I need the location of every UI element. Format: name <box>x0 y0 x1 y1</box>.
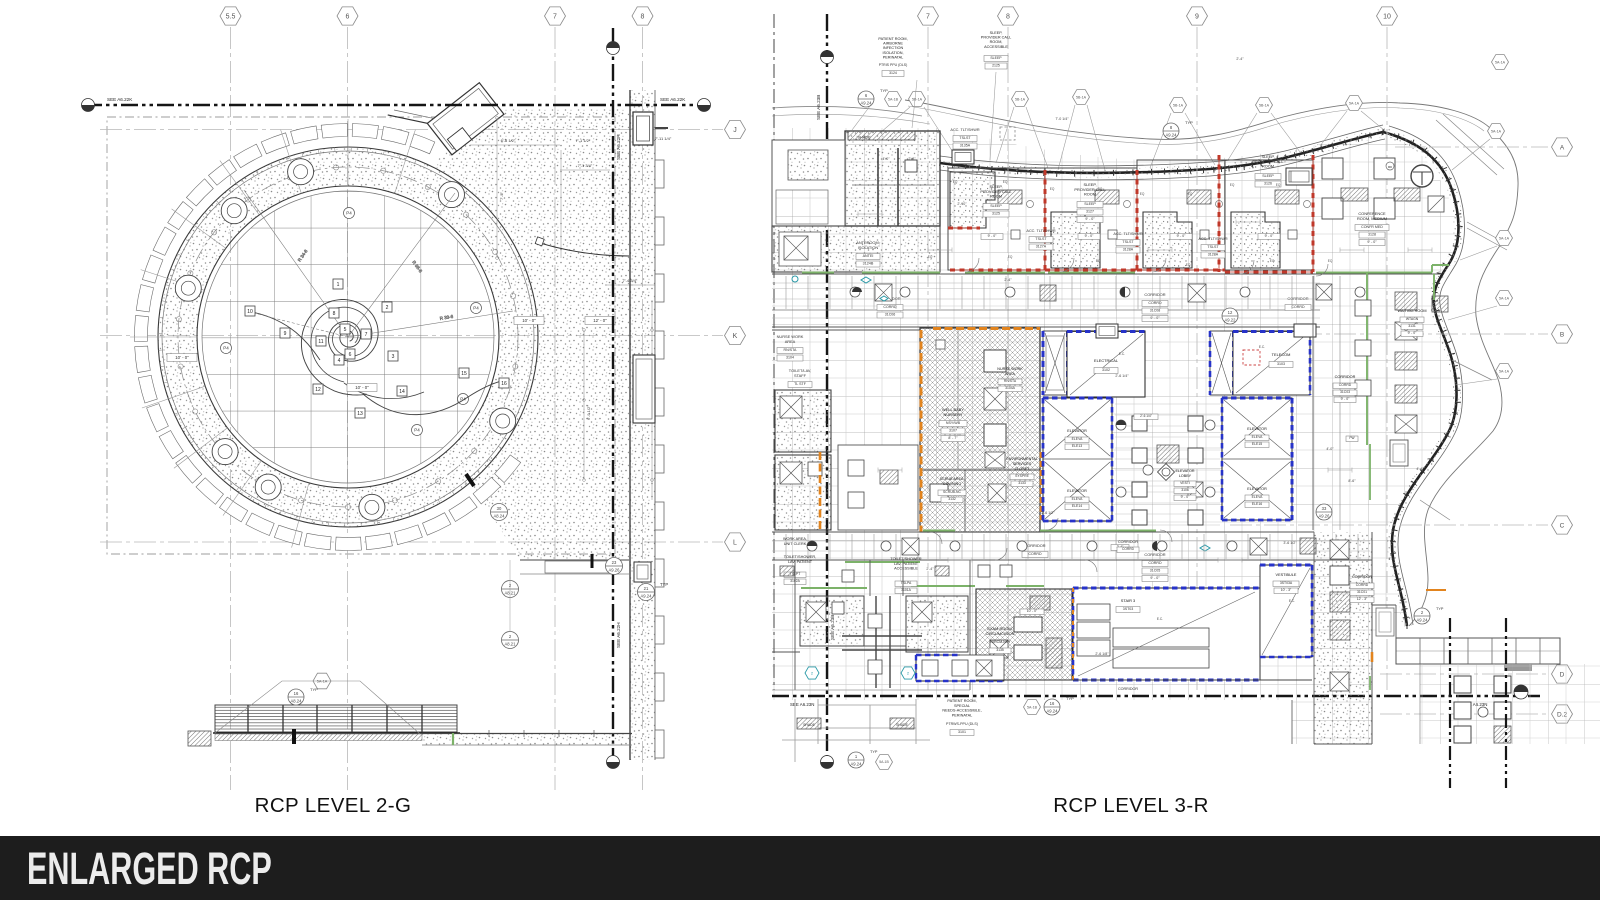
svg-text:2'-8": 2'-8" <box>908 157 916 161</box>
svg-text:5B-1A: 5B-1A <box>912 97 923 101</box>
svg-text:EQ: EQ <box>1230 183 1235 187</box>
svg-text:21: 21 <box>644 586 649 591</box>
svg-text:SEE A6.23N: SEE A6.23N <box>790 702 814 707</box>
svg-text:5B-1A: 5B-1A <box>1015 97 1026 101</box>
svg-text:7: 7 <box>553 13 557 20</box>
svg-text:RN/STA: RN/STA <box>784 348 798 352</box>
svg-text:3132: 3132 <box>948 497 956 501</box>
svg-text:6: 6 <box>349 352 352 358</box>
svg-text:PERINATAL: PERINATAL <box>883 55 904 59</box>
svg-text:2'-6 1/4": 2'-6 1/4" <box>1115 374 1129 378</box>
svg-text:10' - 0": 10' - 0" <box>1027 609 1038 613</box>
svg-text:PTRIS PPU (DLS): PTRIS PPU (DLS) <box>879 63 908 67</box>
svg-text:31C03: 31C03 <box>1340 390 1350 394</box>
svg-text:5A-1A: 5A-1A <box>1499 236 1510 240</box>
svg-text:9: 9 <box>1195 13 1199 20</box>
svg-text:9' - 0": 9' - 0" <box>1265 234 1274 238</box>
svg-text:ENVIRONMENTAL: ENVIRONMENTAL <box>1006 457 1037 461</box>
svg-text:SHADE: SHADE <box>803 723 815 727</box>
svg-text:2'-4": 2'-4" <box>1004 278 1012 282</box>
svg-text:LAV. PATIENT: LAV. PATIENT <box>788 560 813 564</box>
svg-text:9' - 0": 9' - 0" <box>1085 217 1095 221</box>
svg-text:CORRD: CORRD <box>883 305 897 309</box>
svg-text:16: 16 <box>501 381 507 387</box>
svg-text:ACCESSIBLE: ACCESSIBLE <box>984 45 1008 49</box>
svg-text:6'-8 1/2": 6'-8 1/2" <box>501 138 516 143</box>
svg-text:RCP LEVEL 3-R: RCP LEVEL 3-R <box>1053 794 1209 817</box>
svg-text:MD: MD <box>1388 165 1392 169</box>
svg-text:E.C.: E.C. <box>1157 617 1163 621</box>
svg-text:A9.24: A9.24 <box>1166 133 1178 138</box>
svg-text:ACC. TLT/SHWR: ACC. TLT/SHWR <box>1198 237 1227 241</box>
svg-text:SLEEP: SLEEP <box>1262 174 1274 178</box>
svg-text:CORRIDOR: CORRIDOR <box>1287 296 1308 301</box>
svg-text:3124B: 3124B <box>863 262 874 266</box>
svg-text:PROVIDER CALL: PROVIDER CALL <box>981 36 1011 40</box>
svg-text:EQ: EQ <box>1270 259 1275 263</box>
svg-text:1: 1 <box>337 282 340 288</box>
svg-text:ELECTRICAL: ELECTRICAL <box>1094 358 1119 363</box>
svg-text:PATIENT ROOM,: PATIENT ROOM, <box>947 699 976 703</box>
svg-text:ELEVATOR: ELEVATOR <box>1247 487 1267 491</box>
svg-text:STAIR 3: STAIR 3 <box>1121 598 1135 603</box>
svg-text:3'-6 1/2": 3'-6 1/2" <box>1283 541 1297 545</box>
svg-text:L: L <box>733 539 737 546</box>
svg-text:3102: 3102 <box>1102 368 1110 372</box>
svg-text:UNIT CLERK: UNIT CLERK <box>784 542 807 546</box>
svg-text:TYP: TYP <box>310 687 318 692</box>
svg-text:A9.26: A9.26 <box>609 568 621 573</box>
svg-text:5A-1A: 5A-1A <box>1499 296 1510 300</box>
svg-text:CORRIDOR: CORRIDOR <box>1024 543 1045 548</box>
svg-text:RN/STA: RN/STA <box>1004 379 1017 383</box>
svg-text:A9.26: A9.26 <box>1319 514 1331 519</box>
svg-text:7'-11 1/4": 7'-11 1/4" <box>655 136 672 141</box>
svg-text:CORRIDOR: CORRIDOR <box>1144 292 1165 297</box>
svg-text:EQ: EQ <box>1328 259 1333 263</box>
svg-text:3135A: 3135A <box>960 144 971 148</box>
svg-text:31C01: 31C01 <box>1357 590 1367 594</box>
svg-text:8: 8 <box>641 13 645 20</box>
svg-text:SYSPRE: SYSPRE <box>1015 474 1029 478</box>
svg-text:16: 16 <box>1050 701 1055 706</box>
svg-text:2'-10": 2'-10" <box>957 202 967 206</box>
svg-text:4'-0": 4'-0" <box>882 157 890 161</box>
svg-text:5: 5 <box>344 327 347 333</box>
svg-text:PTRWS-PPU (DLS): PTRWS-PPU (DLS) <box>946 722 978 726</box>
svg-text:3107: 3107 <box>949 429 957 433</box>
svg-text:TOILET/SHOWER,: TOILET/SHOWER, <box>784 555 816 559</box>
svg-text:STAFF: STAFF <box>794 373 807 378</box>
svg-text:3ST03: 3ST03 <box>1123 607 1134 611</box>
svg-text:9' - 0": 9' - 0" <box>1085 234 1094 238</box>
svg-text:8'-6": 8'-6" <box>1348 479 1356 483</box>
svg-text:SEE A6.22H: SEE A6.22H <box>616 134 621 160</box>
svg-text:ACCESSIBLE: ACCESSIBLE <box>894 567 918 571</box>
svg-text:AREA: AREA <box>1005 372 1016 376</box>
svg-text:WORK AREA,: WORK AREA, <box>783 537 807 541</box>
svg-text:3131: 3131 <box>1408 324 1416 328</box>
svg-text:5A-1A: 5A-1A <box>1349 101 1360 105</box>
svg-text:A: A <box>1560 144 1565 151</box>
svg-text:9' - 0": 9' - 0" <box>1408 331 1417 335</box>
svg-text:ACC. TLT/SHWR: ACC. TLT/SHWR <box>1113 232 1142 236</box>
svg-text:33: 33 <box>1322 506 1327 511</box>
svg-text:4: 4 <box>338 358 341 364</box>
svg-text:ENLARGED RCP: ENLARGED RCP <box>27 844 272 894</box>
svg-text:5A-1B: 5A-1B <box>879 760 889 764</box>
svg-text:7'-1 3/4": 7'-1 3/4" <box>578 163 593 168</box>
svg-text:3133: 3133 <box>1018 481 1026 485</box>
svg-text:AIRBORNE: AIRBORNE <box>883 42 903 46</box>
svg-text:ROOM: ROOM <box>1262 164 1274 169</box>
svg-text:TYP: TYP <box>870 750 878 754</box>
svg-text:CONFR MED: CONFR MED <box>1361 225 1383 229</box>
svg-text:CLOSET: CLOSET <box>1015 467 1031 471</box>
svg-text:5B-1A: 5B-1A <box>1076 95 1087 99</box>
svg-text:10' - 3": 10' - 3" <box>1281 588 1292 592</box>
svg-text:CORRIDOR: CORRIDOR <box>1352 575 1372 579</box>
svg-text:CORRIDOR: CORRIDOR <box>1335 375 1356 379</box>
svg-text:ELE14: ELE14 <box>1072 504 1082 508</box>
svg-text:12' - 0": 12' - 0" <box>593 318 607 323</box>
svg-text:RCP LEVEL 2-G: RCP LEVEL 2-G <box>255 794 412 817</box>
svg-text:3128A: 3128A <box>1208 253 1219 257</box>
svg-text:CORRD: CORRD <box>1028 552 1042 556</box>
svg-text:CORRD: CORRD <box>1339 383 1352 387</box>
svg-text:23: 23 <box>612 560 617 565</box>
svg-text:3: 3 <box>392 354 395 360</box>
svg-text:3104A: 3104A <box>1005 386 1016 390</box>
svg-text:31C06: 31C06 <box>885 313 896 317</box>
svg-text:9' - 0": 9' - 0" <box>1367 240 1377 244</box>
svg-text:SLEEP: SLEEP <box>1084 202 1096 206</box>
svg-text:5A-1A: 5A-1A <box>317 679 328 683</box>
svg-text:7'-0 1/4": 7'-0 1/4" <box>1055 117 1069 121</box>
svg-text:5A-1B: 5A-1B <box>888 97 899 101</box>
svg-text:ISOLATION,: ISOLATION, <box>882 51 903 55</box>
svg-text:SEE A6.22H: SEE A6.22H <box>616 622 621 648</box>
svg-text:3128A: 3128A <box>1123 248 1134 252</box>
svg-text:EQ: EQ <box>1050 187 1055 191</box>
svg-text:CORRD: CORRD <box>1148 561 1162 565</box>
svg-text:EQ: EQ <box>1098 187 1103 191</box>
svg-text:PATIENT ROOM,: PATIENT ROOM, <box>878 37 907 41</box>
svg-text:WTAGN: WTAGN <box>1406 317 1419 321</box>
svg-text:EQ: EQ <box>1003 180 1008 184</box>
svg-text:7: 7 <box>365 332 368 338</box>
svg-text:EQ: EQ <box>1008 255 1013 259</box>
svg-text:EQ: EQ <box>1276 183 1281 187</box>
svg-text:9' - 0": 9' - 0" <box>1181 495 1190 499</box>
svg-text:P4: P4 <box>223 346 229 351</box>
svg-text:VESTI: VESTI <box>1180 481 1190 485</box>
svg-text:CORRD: CORRD <box>1122 547 1135 551</box>
svg-text:SHADE: SHADE <box>896 723 908 727</box>
svg-text:7'-1 1/2": 7'-1 1/2" <box>576 138 591 143</box>
svg-text:CORRIDOR: CORRIDOR <box>1118 540 1138 544</box>
svg-text:7: 7 <box>926 13 930 20</box>
svg-text:6: 6 <box>346 13 350 20</box>
svg-text:ACC. TLT/SHWR: ACC. TLT/SHWR <box>950 128 979 132</box>
svg-text:3ST03A: 3ST03A <box>1280 581 1293 585</box>
svg-text:3127A: 3127A <box>1036 245 1047 249</box>
svg-text:TSLST: TSLST <box>959 136 971 140</box>
svg-text:E.C.: E.C. <box>1259 345 1265 349</box>
svg-text:4'-4": 4'-4" <box>1416 467 1424 471</box>
svg-text:5B-1A: 5B-1A <box>1173 103 1184 107</box>
svg-text:ELEVA: ELEVA <box>1252 495 1263 499</box>
svg-text:PW: PW <box>1349 436 1354 440</box>
svg-text:SPECIAL: SPECIAL <box>954 704 970 708</box>
svg-text:9: 9 <box>284 331 287 337</box>
svg-text:LAV. PATIENT: LAV. PATIENT <box>894 562 919 566</box>
svg-text:3127: 3127 <box>1086 210 1094 214</box>
svg-text:SERVICES: SERVICES <box>1013 462 1032 466</box>
svg-text:9' - 0": 9' - 0" <box>1341 397 1350 401</box>
svg-text:ANTEI: ANTEI <box>863 254 874 258</box>
svg-text:EQ: EQ <box>1140 192 1145 196</box>
svg-text:5A-1A: 5A-1A <box>1491 129 1502 133</box>
svg-text:11: 11 <box>318 339 323 345</box>
svg-text:EQ: EQ <box>1096 259 1101 263</box>
svg-text:SHADE: SHADE <box>857 136 871 140</box>
svg-text:A9.24: A9.24 <box>851 762 863 767</box>
svg-text:SLEEP,: SLEEP, <box>990 31 1003 35</box>
svg-text:5A-1A: 5A-1A <box>1499 369 1510 373</box>
svg-text:PERINATAL: PERINATAL <box>952 713 973 717</box>
svg-text:VESTIBULE: VESTIBULE <box>1276 573 1297 577</box>
svg-text:CORRD: CORRD <box>1356 583 1369 587</box>
svg-text:SCRUB AREA,: SCRUB AREA, <box>940 477 965 481</box>
svg-text:7'-5": 7'-5" <box>499 191 504 200</box>
svg-text:TSLPA: TSLPA <box>901 581 912 585</box>
svg-text:SEE A6.23B: SEE A6.23B <box>816 95 821 120</box>
svg-text:TL STF: TL STF <box>794 382 807 386</box>
svg-text:SLEEP: SLEEP <box>990 204 1002 208</box>
svg-text:A9.24: A9.24 <box>641 594 653 599</box>
svg-text:A8.24: A8.24 <box>494 514 506 519</box>
svg-text:10' - 0": 10' - 0" <box>355 385 369 390</box>
svg-text:ELEVA: ELEVA <box>1252 435 1263 439</box>
svg-text:SCRUB-NC: SCRUB-NC <box>943 490 961 494</box>
svg-text:EXRCM-NSY: EXRCM-NSY <box>989 640 1011 644</box>
svg-text:A9.24: A9.24 <box>861 101 873 106</box>
svg-text:9' - 0": 9' - 0" <box>1177 234 1186 238</box>
svg-text:C: C <box>1560 522 1565 529</box>
svg-text:ELEVA: ELEVA <box>1072 437 1083 441</box>
svg-text:B: B <box>1560 331 1564 338</box>
svg-text:NEEDS-ACCESSIBLE,: NEEDS-ACCESSIBLE, <box>942 709 981 713</box>
svg-text:2'-4": 2'-4" <box>1236 57 1244 61</box>
svg-text:A9.24: A9.24 <box>1417 618 1429 623</box>
svg-text:CIRCUMCISION: CIRCUMCISION <box>986 631 1015 636</box>
svg-text:2'-6 1/8": 2'-6 1/8" <box>1095 652 1109 656</box>
svg-text:13: 13 <box>357 411 363 417</box>
svg-text:6'-9 1/2": 6'-9 1/2" <box>586 405 591 420</box>
svg-text:5A-1B: 5A-1B <box>1027 705 1038 709</box>
svg-text:12: 12 <box>1228 310 1233 315</box>
svg-text:10' - 0": 10' - 0" <box>175 355 189 360</box>
svg-text:K: K <box>733 333 738 340</box>
svg-text:5A-1A: 5A-1A <box>1495 60 1506 64</box>
svg-text:EQ: EQ <box>928 255 933 259</box>
svg-text:TOILET/SHOWER: TOILET/SHOWER <box>890 557 922 561</box>
svg-text:INFECTION: INFECTION <box>883 46 904 50</box>
svg-text:CORRIDOR: CORRIDOR <box>1144 552 1165 557</box>
svg-text:TYP: TYP <box>1185 120 1193 125</box>
svg-text:14: 14 <box>399 389 405 395</box>
svg-text:TSLST: TSLST <box>1122 240 1134 244</box>
svg-text:10: 10 <box>247 309 253 315</box>
svg-text:3103: 3103 <box>1277 362 1285 366</box>
svg-text:ROOM: ROOM <box>990 194 1002 199</box>
svg-text:2'-6 1/4": 2'-6 1/4" <box>1140 414 1152 418</box>
svg-text:3128: 3128 <box>1368 233 1376 237</box>
svg-text:SLEEP: SLEEP <box>990 56 1002 60</box>
svg-text:SEE A6.22K: SEE A6.22K <box>660 97 686 102</box>
svg-text:WAITING ROOM: WAITING ROOM <box>1398 309 1427 313</box>
svg-text:ELE15: ELE15 <box>1252 442 1262 446</box>
svg-text:ACC. TLT/SHWR: ACC. TLT/SHWR <box>1026 229 1055 233</box>
svg-text:ELE13: ELE13 <box>1072 444 1082 448</box>
svg-text:31C05: 31C05 <box>1150 569 1161 573</box>
svg-text:TYP: TYP <box>880 88 888 93</box>
svg-text:9' - 0": 9' - 0" <box>1150 576 1160 580</box>
svg-text:2: 2 <box>386 305 389 311</box>
svg-text:12' - 3": 12' - 3" <box>1357 597 1368 601</box>
svg-text:10' - 0": 10' - 0" <box>522 318 536 323</box>
svg-text:3126: 3126 <box>1264 182 1272 186</box>
svg-text:TSLST: TSLST <box>1207 245 1219 249</box>
svg-text:3104: 3104 <box>786 356 794 360</box>
svg-text:A9.24: A9.24 <box>1047 709 1059 714</box>
svg-text:4'-0": 4'-0" <box>1326 447 1334 451</box>
svg-text:ELEVA: ELEVA <box>1072 497 1083 501</box>
svg-text:8' - 7": 8' - 7" <box>948 436 958 440</box>
svg-text:GOWNING: GOWNING <box>943 482 962 486</box>
svg-text:ROOM: ROOM <box>1084 192 1096 197</box>
svg-text:A8.21: A8.21 <box>505 591 517 596</box>
svg-text:NURSERY: NURSERY <box>944 412 963 417</box>
svg-text:SEE A6.22K: SEE A6.22K <box>107 97 133 102</box>
svg-text:E.C.: E.C. <box>1289 599 1295 603</box>
svg-text:ROOM,: ROOM, <box>990 40 1003 44</box>
svg-text:TYP: TYP <box>660 582 668 587</box>
svg-text:3106: 3106 <box>1181 488 1189 492</box>
svg-text:EQ: EQ <box>1186 263 1191 267</box>
svg-text:EQ: EQ <box>953 180 958 184</box>
svg-text:5B-1A: 5B-1A <box>1259 103 1270 107</box>
svg-text:AREA: AREA <box>785 339 796 344</box>
svg-text:P4: P4 <box>473 306 479 311</box>
svg-text:E.C.: E.C. <box>1119 352 1125 356</box>
svg-text:30: 30 <box>497 506 502 511</box>
svg-text:TSLST: TSLST <box>1035 237 1047 241</box>
svg-text:TYP: TYP <box>1066 696 1074 701</box>
svg-text:ELEVATOR: ELEVATOR <box>1247 427 1267 431</box>
svg-text:12: 12 <box>315 387 321 393</box>
svg-text:A8.21: A8.21 <box>505 642 517 647</box>
svg-text:31C08: 31C08 <box>1150 309 1161 313</box>
svg-text:ELEVATOR: ELEVATOR <box>1067 489 1087 493</box>
svg-text:8: 8 <box>1006 13 1010 20</box>
svg-text:3101: 3101 <box>958 730 966 734</box>
svg-text:J: J <box>733 127 737 134</box>
svg-text:3125: 3125 <box>992 212 1000 216</box>
svg-text:TELECOM: TELECOM <box>1272 352 1291 357</box>
svg-text:ELEVATOR: ELEVATOR <box>1175 469 1194 473</box>
svg-text:5.5: 5.5 <box>226 13 236 20</box>
svg-text:2'-4": 2'-4" <box>926 567 934 571</box>
svg-text:10: 10 <box>1383 13 1391 20</box>
svg-text:2125: 2125 <box>992 64 1000 68</box>
svg-text:TYP: TYP <box>1436 607 1444 611</box>
svg-text:3135: 3135 <box>996 648 1004 652</box>
svg-text:P4: P4 <box>346 211 352 216</box>
svg-text:LOBBY: LOBBY <box>1179 474 1192 478</box>
svg-text:3124: 3124 <box>889 71 897 75</box>
svg-text:ELEVATOR: ELEVATOR <box>1067 429 1087 433</box>
svg-text:9' - 0": 9' - 0" <box>988 234 997 238</box>
svg-text:1'-6": 1'-6" <box>1388 557 1396 561</box>
svg-text:CORRIDOR: CORRIDOR <box>1118 687 1138 691</box>
svg-text:15: 15 <box>461 371 467 377</box>
svg-text:ELE16: ELE16 <box>1252 502 1262 506</box>
svg-text:A8.24: A8.24 <box>291 699 303 704</box>
svg-text:NSY/WB: NSY/WB <box>946 421 961 425</box>
svg-text:NURSE WORK: NURSE WORK <box>997 367 1023 371</box>
svg-text:A9.22: A9.22 <box>1225 318 1237 323</box>
svg-text:CORRD: CORRD <box>1291 305 1305 309</box>
svg-text:16: 16 <box>294 691 299 696</box>
svg-text:ISOLATION: ISOLATION <box>858 245 879 250</box>
svg-text:EQ: EQ <box>1188 192 1193 196</box>
svg-text:P4: P4 <box>414 428 420 433</box>
svg-text:8: 8 <box>333 311 336 317</box>
svg-text:ROOM, MEDIUM: ROOM, MEDIUM <box>1357 216 1387 221</box>
svg-text:2'-6 1/2": 2'-6 1/2" <box>1041 511 1055 515</box>
